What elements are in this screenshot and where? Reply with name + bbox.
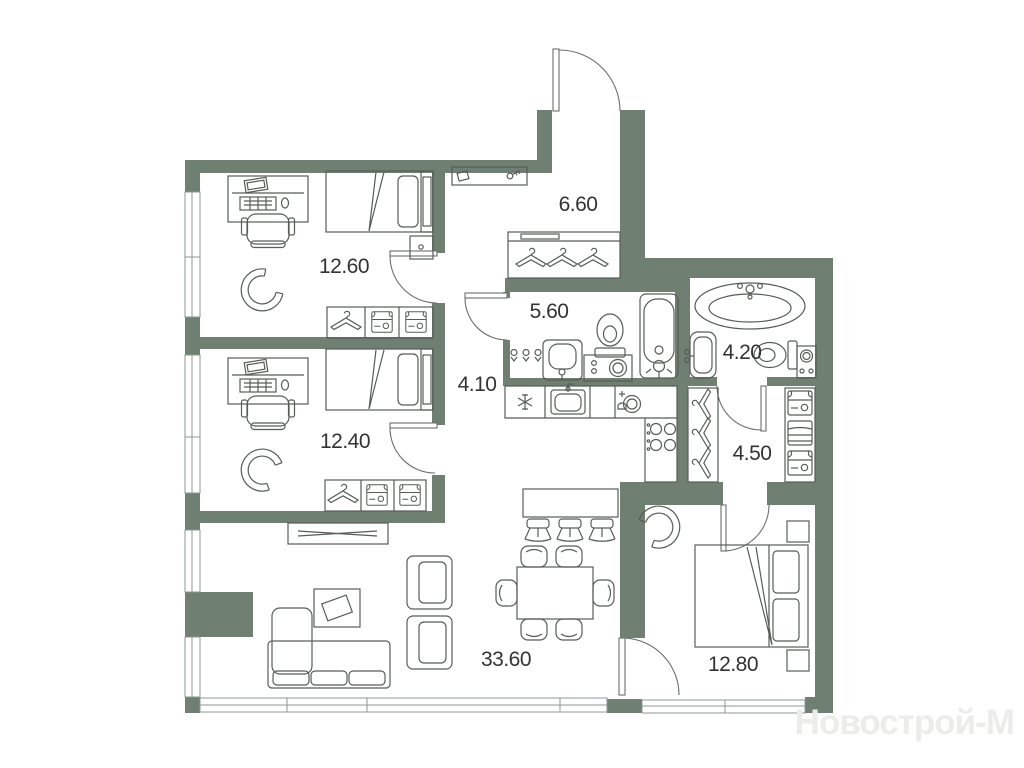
- watermark-text: Новострой-М: [795, 703, 1014, 742]
- room-area-label: 5.60: [530, 300, 569, 323]
- window-bedroom-master: [642, 700, 805, 713]
- kitchen-counter: [505, 384, 677, 482]
- floor-plan-page: 12.60 6.60: [0, 0, 1024, 768]
- hall-closet: [508, 232, 620, 278]
- room-area-label: 12.40: [320, 430, 370, 453]
- dishwasher-icon: [618, 391, 641, 413]
- room-area-label: 12.60: [319, 255, 369, 278]
- desk-icon: [228, 176, 308, 248]
- window-living-left-1: [185, 530, 200, 592]
- room-bathroom-main: 5.60: [511, 294, 678, 381]
- door-bedroom-master-closet: [721, 505, 769, 551]
- room-bedroom-middle: 12.40: [228, 349, 433, 511]
- fridge-icon: [518, 394, 532, 410]
- armchair-icon: [234, 442, 284, 495]
- stove-icon: [647, 424, 675, 451]
- doors: [390, 49, 769, 695]
- wardrobe-strip: [327, 307, 433, 338]
- armchair-square-icon: [407, 556, 452, 609]
- shelf-rail: [785, 388, 815, 482]
- room-area-label: 6.60: [559, 193, 598, 216]
- wardrobe-strip: [325, 480, 426, 511]
- room-area-label: 4.50: [733, 442, 772, 465]
- room-bathroom-master: 4.20: [685, 283, 816, 378]
- towel-hooks-icon: [511, 350, 517, 362]
- room-walk-in-closet: 4.50: [688, 388, 815, 482]
- door-bathroom-main: [465, 293, 507, 340]
- kitchen-island: [523, 489, 618, 541]
- door-bedroom-middle: [390, 423, 437, 473]
- room-area-label: 33.60: [481, 648, 531, 671]
- door-entrance: [553, 49, 620, 111]
- desk-icon: [228, 358, 308, 430]
- oval-bathtub-icon: [695, 283, 805, 329]
- washing-machine-icon: [797, 346, 816, 378]
- room-area-label: 4.20: [723, 341, 762, 364]
- sink-icon: [543, 340, 582, 380]
- single-bed-icon: [326, 349, 433, 410]
- room-corridor: 4.10: [458, 373, 497, 396]
- door-walk-in-closet: [717, 386, 766, 431]
- room-entrance-hall: 6.60: [452, 167, 620, 278]
- window-living-left-2: [185, 637, 200, 697]
- dining-set: [496, 546, 614, 640]
- kitchen-sink-icon: [551, 384, 585, 414]
- washing-machine-icon: [584, 355, 632, 381]
- toilet-icon: [595, 314, 625, 357]
- armchair-icon: [233, 264, 286, 319]
- window-bedroom-middle: [185, 355, 200, 493]
- tv-stand-icon: [288, 523, 388, 544]
- coffee-table-icon: [314, 589, 360, 627]
- armchair-square-icon: [407, 616, 452, 669]
- nightstand-icon: [787, 521, 809, 542]
- single-bed-icon: [326, 171, 433, 232]
- bathtub-icon: [640, 294, 678, 378]
- hanger-rail: [688, 388, 718, 482]
- door-bedroom-master-living: [619, 638, 679, 695]
- double-bed-icon: [695, 545, 808, 647]
- window-living-bottom: [200, 698, 607, 712]
- floor-plan-drawing: 12.60 6.60: [0, 0, 1024, 768]
- room-area-label: 12.80: [708, 653, 758, 676]
- window-bedroom-top: [185, 192, 200, 317]
- nightstand-icon: [787, 650, 809, 671]
- room-area-label: 4.10: [458, 373, 497, 396]
